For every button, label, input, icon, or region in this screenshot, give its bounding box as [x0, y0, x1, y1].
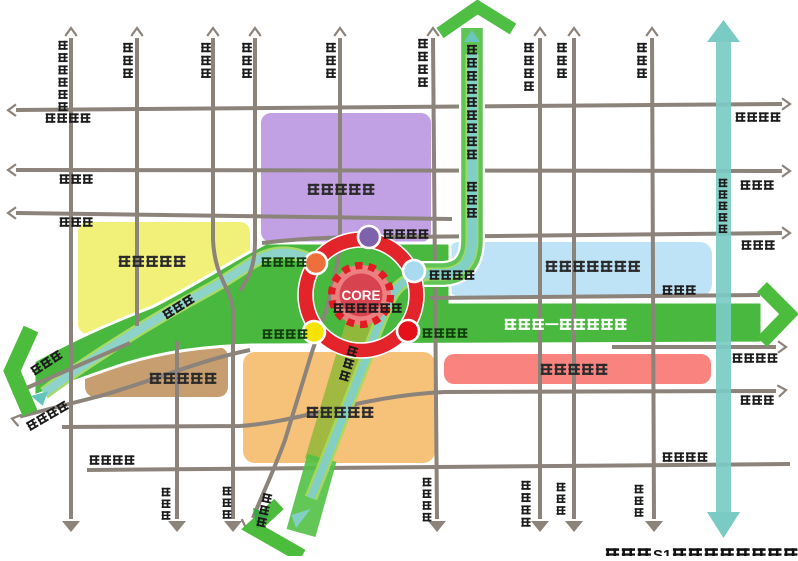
svg-text:S1: S1 — [653, 547, 671, 556]
svg-text:CORE: CORE — [341, 288, 380, 303]
